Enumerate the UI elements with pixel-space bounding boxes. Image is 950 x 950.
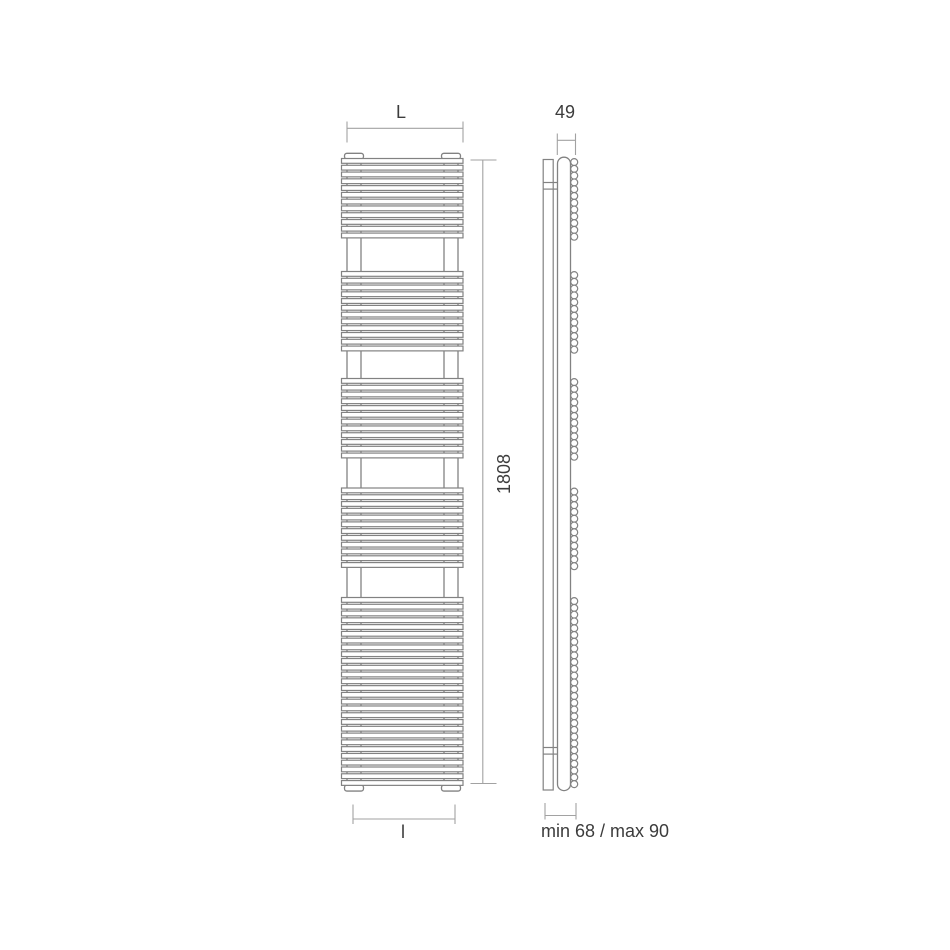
side-view-wall-bracket-rail	[543, 160, 553, 791]
side-view-collector-tube	[558, 157, 571, 790]
side-view-bar-end-circles	[571, 159, 578, 788]
front-view-collectors	[347, 157, 458, 785]
dim-wall-distance-label: min 68 / max 90	[541, 822, 669, 840]
dim-height-label: 1808	[495, 454, 513, 494]
side-view-mounting-brackets	[543, 183, 557, 755]
dim-width-label: L	[381, 103, 421, 121]
drawing-sheet: L 49 1808 l min 68 / max 90	[0, 0, 950, 950]
dim-depth-label: 49	[545, 103, 585, 121]
radiator-technical-drawing	[0, 0, 950, 950]
dim-axis-width-label: l	[383, 823, 423, 841]
